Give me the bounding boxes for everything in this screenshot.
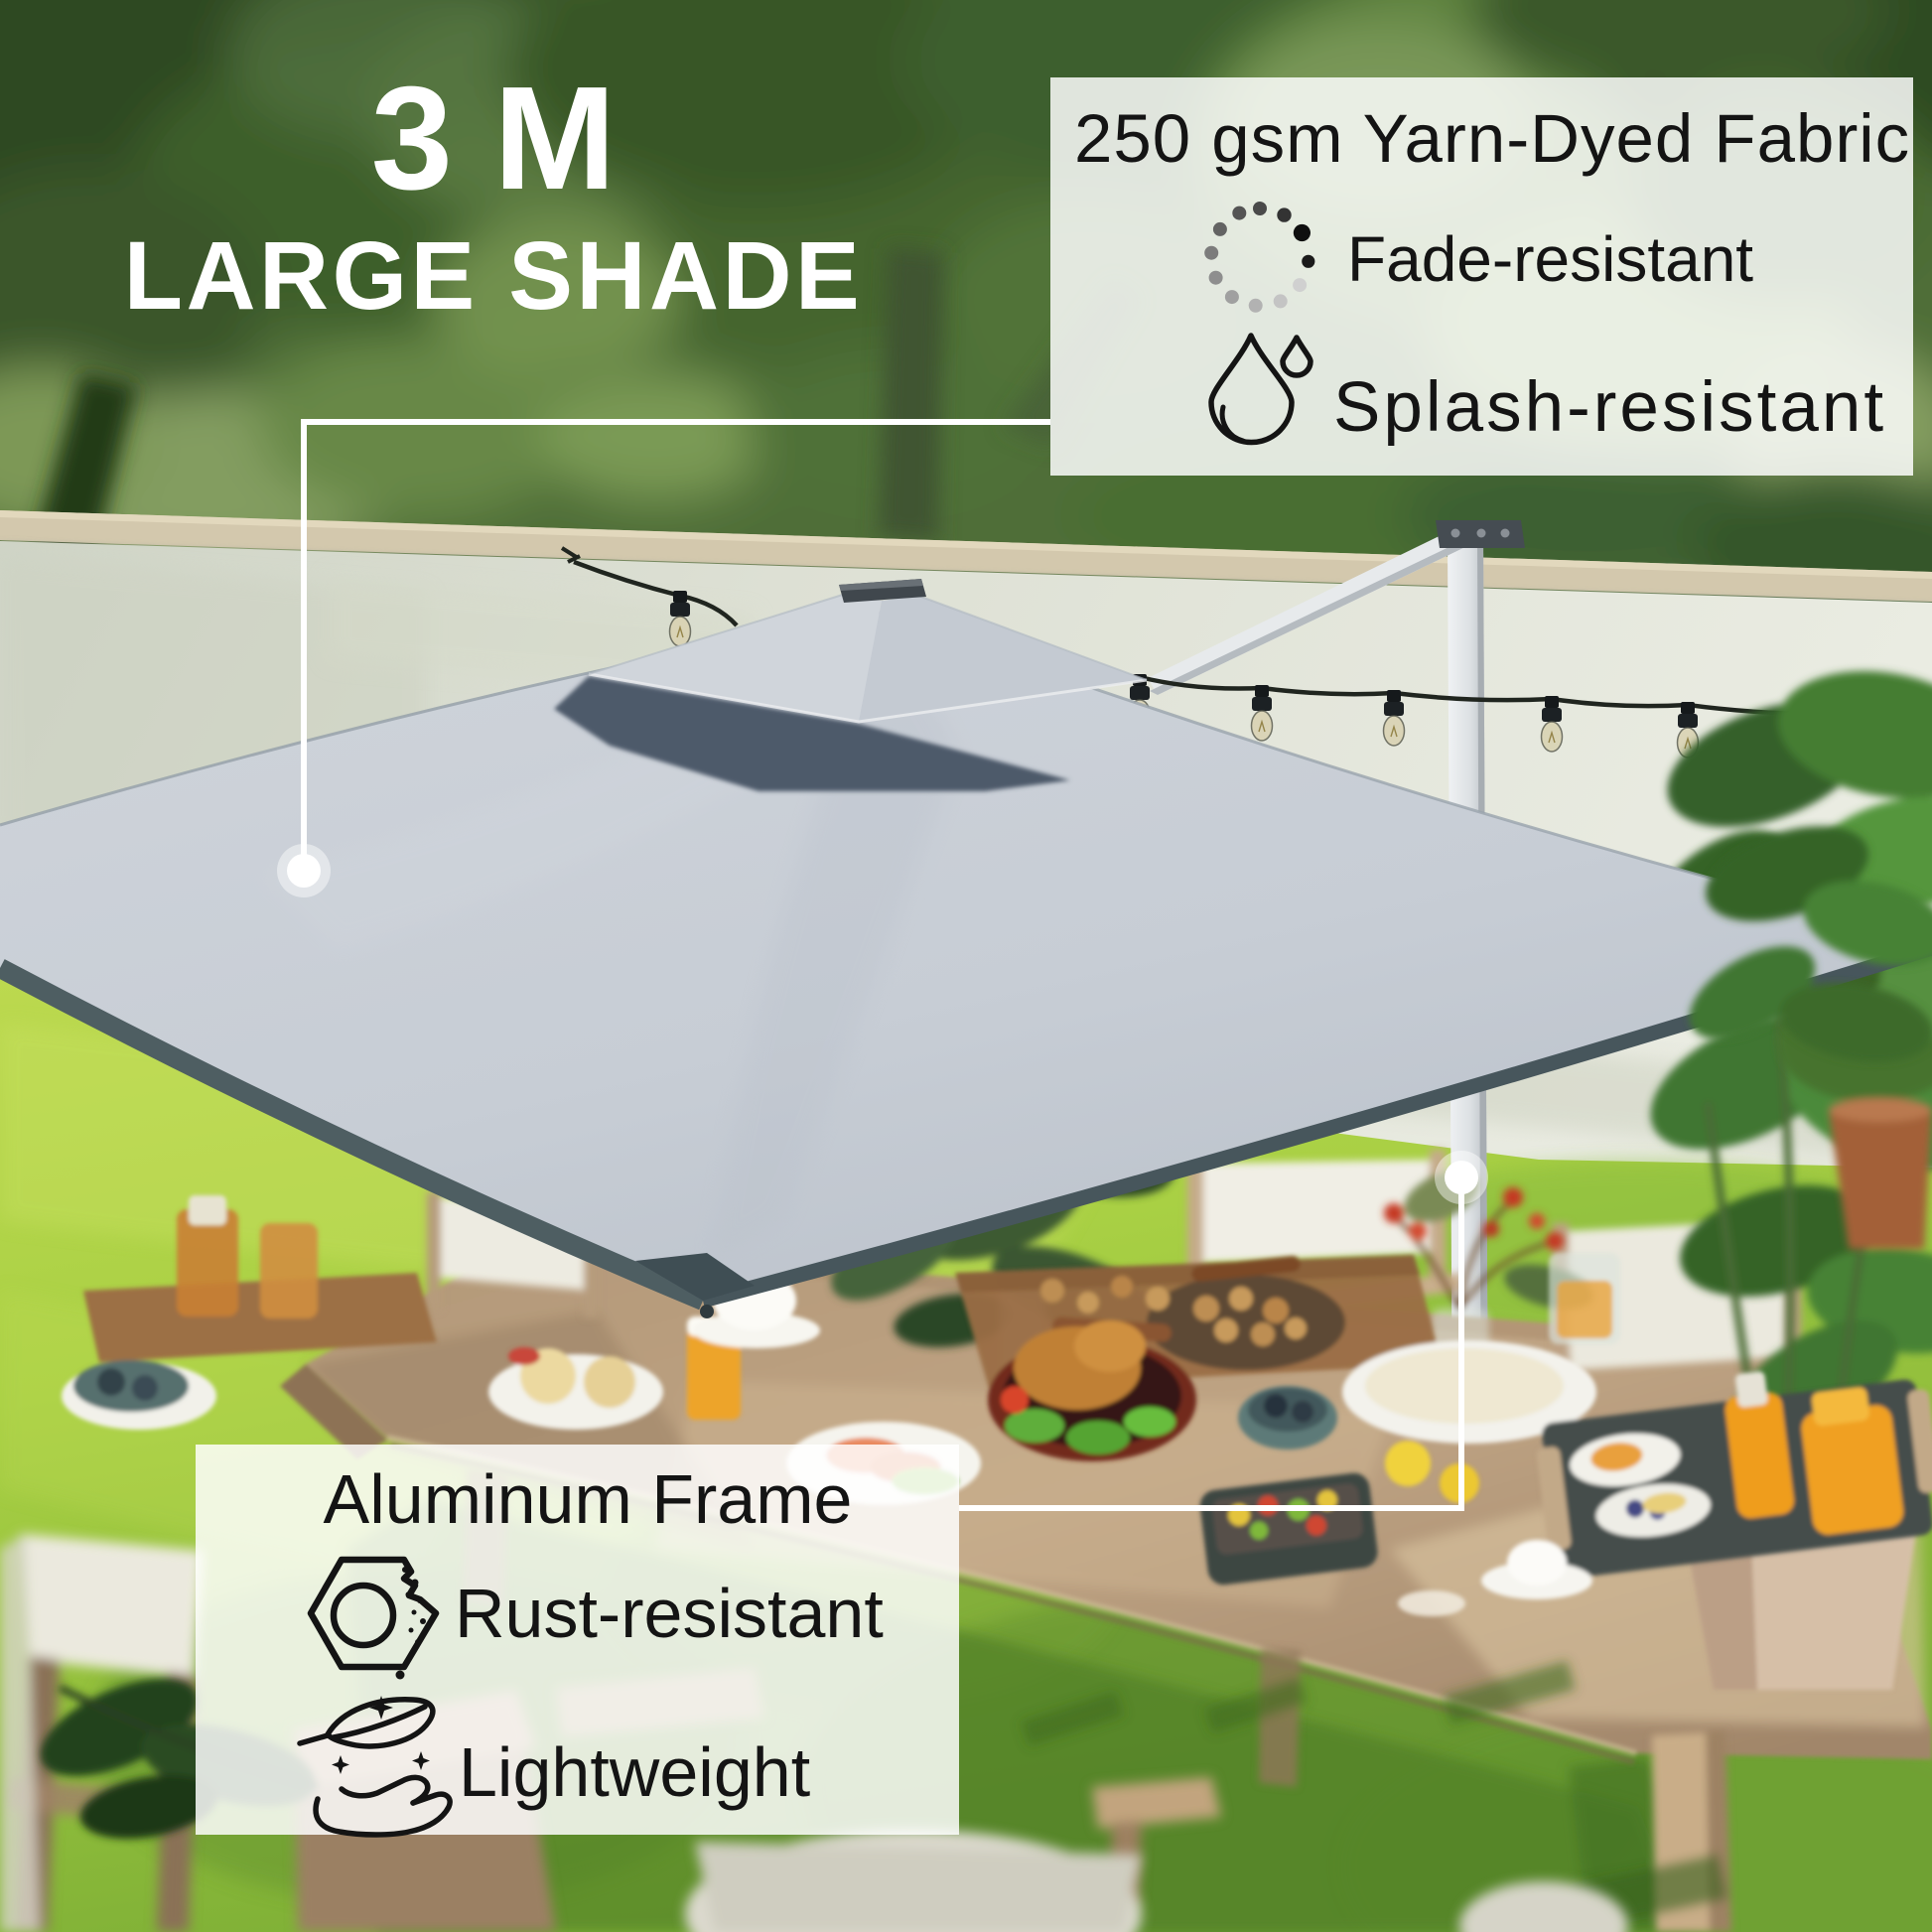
svg-text:Rust-resistant: Rust-resistant (455, 1575, 884, 1652)
svg-text:Lightweight: Lightweight (459, 1733, 810, 1811)
svg-text:250 gsm Yarn-Dyed Fabric: 250 gsm Yarn-Dyed Fabric (1074, 100, 1910, 177)
svg-text:3 M: 3 M (371, 57, 617, 220)
svg-text:Fade-resistant: Fade-resistant (1347, 223, 1753, 295)
svg-text:Splash-resistant: Splash-resistant (1333, 368, 1886, 447)
svg-text:LARGE SHADE: LARGE SHADE (124, 221, 864, 330)
svg-text:Aluminum Frame: Aluminum Frame (324, 1460, 853, 1538)
